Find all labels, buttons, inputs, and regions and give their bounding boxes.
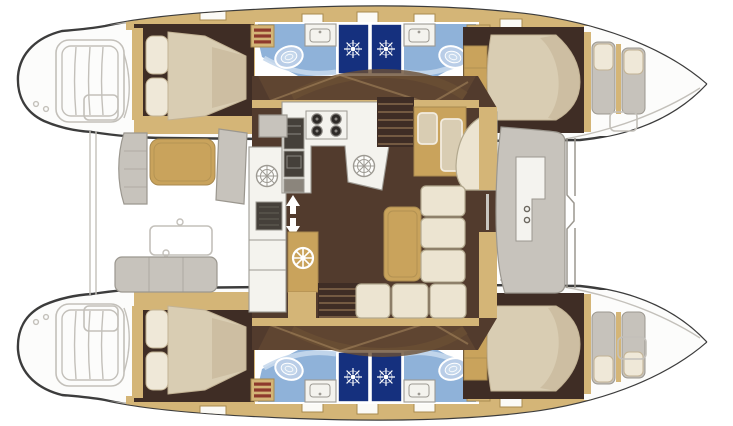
galley-sink	[354, 156, 375, 177]
cockpit-bench	[119, 133, 147, 204]
stairs-port	[377, 97, 414, 147]
washbasin	[305, 24, 336, 46]
settee-cushion	[430, 284, 466, 318]
berth-pillow	[594, 44, 613, 70]
settee-cushion	[421, 250, 465, 282]
bed-pillow	[146, 36, 168, 74]
settee-cushion	[421, 218, 465, 248]
forward-wall	[479, 107, 497, 190]
aft-cabin	[132, 20, 264, 134]
hull-landing-seat	[259, 115, 287, 137]
cockpit-table	[150, 139, 215, 185]
deck-locker-lid	[150, 226, 212, 255]
cockpit-door-panel	[216, 129, 247, 204]
transom-edge	[90, 131, 96, 295]
floorplan-canvas	[0, 0, 733, 426]
oven	[284, 151, 304, 177]
washbasin	[404, 24, 435, 46]
headboard	[132, 28, 143, 120]
aft-counter	[249, 147, 286, 312]
salon	[249, 74, 497, 353]
cockpit	[90, 129, 247, 295]
counter-sink	[257, 166, 278, 187]
forepeak-bulkhead	[584, 32, 591, 132]
forward-wall	[479, 232, 497, 318]
settee-cushion	[421, 186, 465, 216]
dining-table	[384, 207, 421, 281]
settee-cushion	[356, 284, 390, 318]
cockpit-bench	[115, 257, 217, 292]
wheel-locker	[288, 232, 318, 318]
berth-pillow	[624, 50, 643, 74]
galley-drawer	[284, 179, 304, 192]
catamaran-floorplan	[0, 0, 733, 426]
stairs-starboard	[318, 283, 361, 318]
forepeak	[584, 26, 708, 136]
forward-beam	[567, 138, 575, 288]
bed-pillow	[146, 78, 168, 116]
settee-cushion	[392, 284, 428, 318]
aft-cabin-trim	[134, 116, 264, 134]
nav-seat	[418, 113, 437, 144]
forward-door	[486, 194, 489, 230]
forepeak-divider	[616, 44, 621, 114]
grill	[256, 202, 282, 230]
